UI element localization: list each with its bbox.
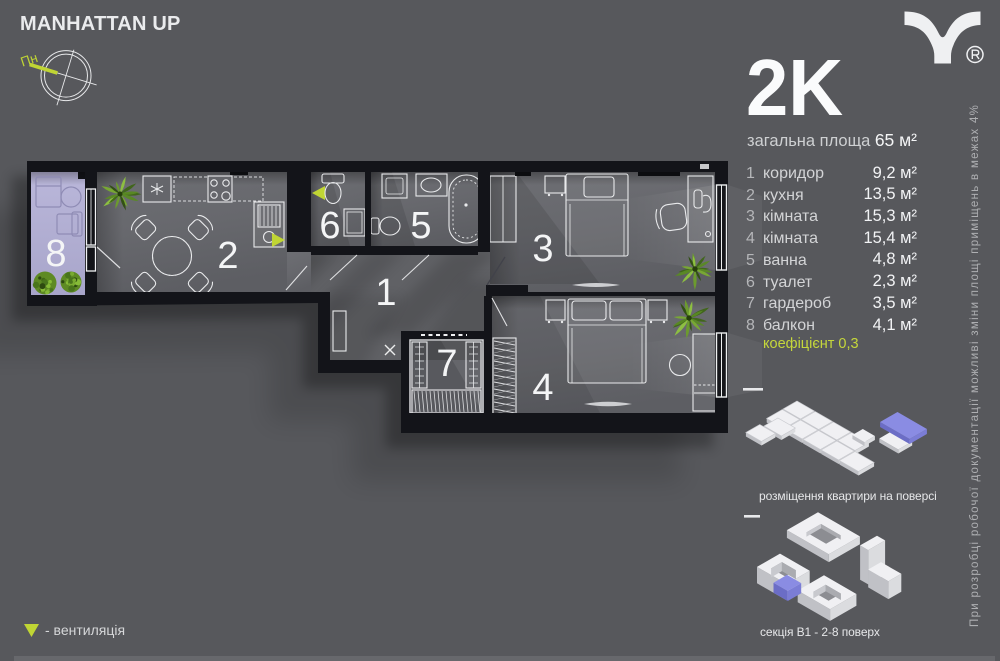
- svg-text:1: 1: [375, 272, 396, 314]
- svg-text:4: 4: [532, 367, 553, 409]
- svg-text:6: 6: [319, 205, 340, 247]
- svg-text:7: 7: [436, 343, 457, 385]
- svg-text:5: 5: [410, 205, 431, 247]
- svg-text:2: 2: [217, 235, 238, 277]
- svg-text:8: 8: [45, 233, 66, 275]
- svg-text:3: 3: [532, 228, 553, 270]
